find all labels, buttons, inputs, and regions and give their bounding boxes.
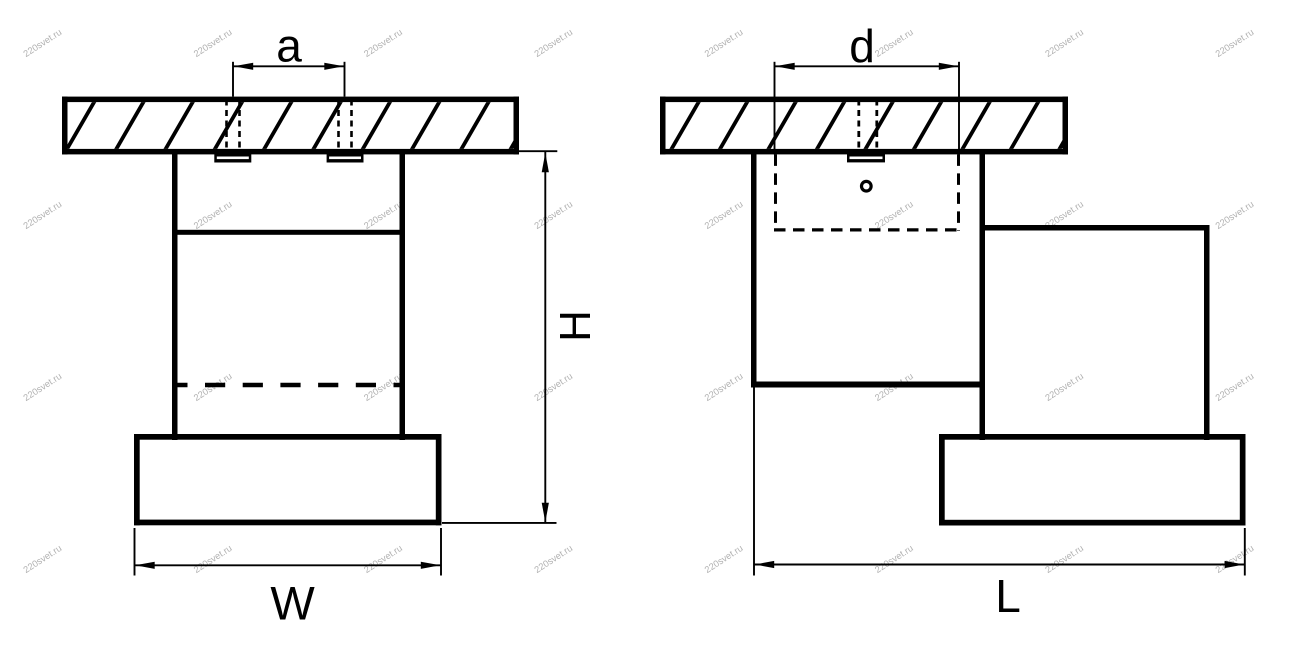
svg-text:H: H — [551, 310, 600, 342]
svg-text:a: a — [276, 20, 302, 72]
svg-text:W: W — [270, 577, 315, 630]
svg-text:L: L — [995, 570, 1021, 622]
svg-text:d: d — [849, 20, 875, 72]
